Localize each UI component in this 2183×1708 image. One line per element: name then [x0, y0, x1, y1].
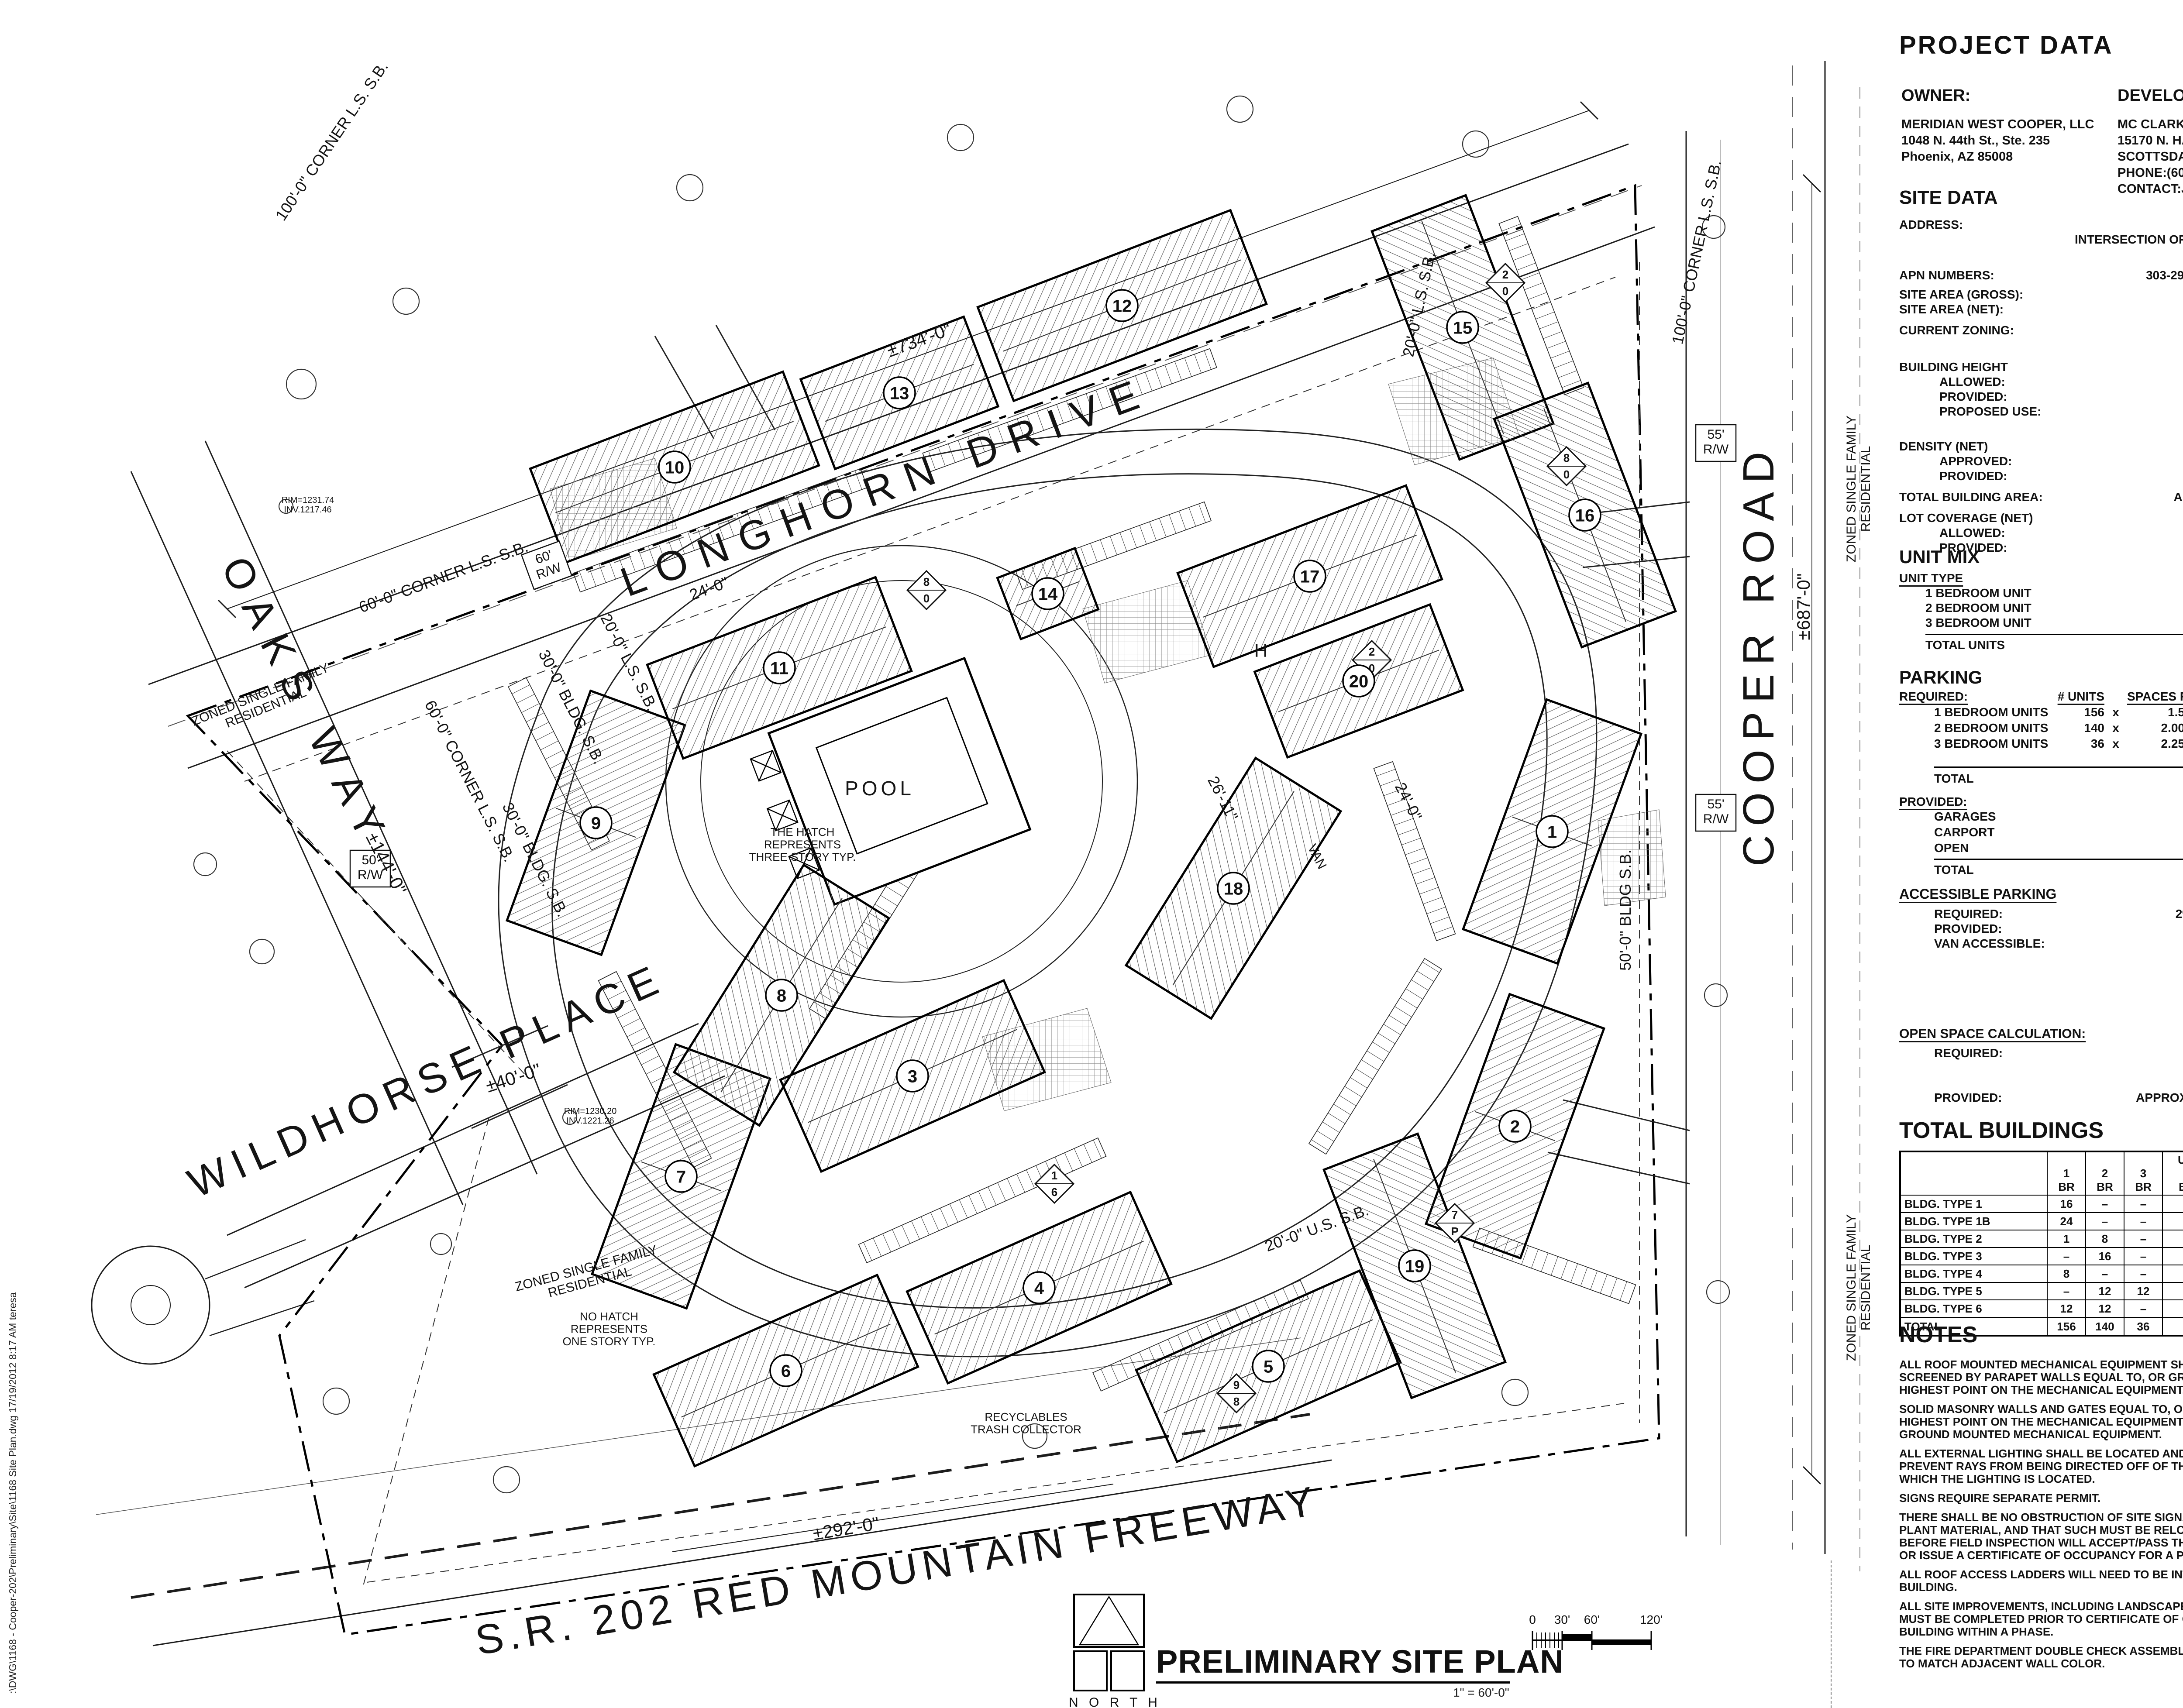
accessible-parking-block: ACCESSIBLE PARKING REQUIRED:2% x 626 = 1…: [1899, 886, 2183, 951]
site-data-title: SITE DATA: [1899, 187, 1998, 209]
building-number-marker: 6: [770, 1355, 802, 1386]
table-cell: 9: [2162, 1230, 2183, 1247]
parking-title: PARKING: [1899, 667, 2183, 688]
parking-cell: GARAGES: [1934, 809, 2183, 825]
svg-text:20: 20: [1349, 672, 1369, 691]
drawing-sheet: 208020167P9880 60'R/W55'R/W55'R/W50'R/W …: [0, 0, 2183, 1708]
row-label: ADDRESS:: [1899, 217, 1963, 262]
row-value: TO BE ASSIGNED INTERSECTION OF COOPER RO…: [2075, 217, 2183, 262]
accessible-row: PROVIDED:14 SPACES: [1934, 921, 2183, 936]
svg-text:55': 55': [1707, 797, 1724, 811]
parking-cell: x: [2104, 736, 2127, 752]
svg-text:10: 10: [665, 458, 685, 477]
svg-text:6: 6: [781, 1361, 791, 1381]
building-number-marker: 15: [1447, 312, 1478, 343]
building-number-marker: 14: [1032, 578, 1064, 609]
table-row: BLDG. TYPE 218–9436: [1900, 1230, 2183, 1247]
row-value: 2% x 626 = 13 SPACES: [2176, 907, 2183, 921]
site-data-row: ADDRESS:TO BE ASSIGNED INTERSECTION OF C…: [1899, 217, 2183, 262]
open-space-row: REQUIRED:150 SF/BEDROOM 568 TOTAL BEDROO…: [1934, 1046, 2183, 1090]
table-cell: BLDG. TYPE 1: [1900, 1195, 2047, 1213]
owner-block: OWNER: MERIDIAN WEST COOPER, LLC 1048 N.…: [1901, 86, 2107, 165]
site-data-row: APN NUMBERS:303-29-483A, 303-29-484A, 30…: [1899, 268, 2183, 283]
plan-label: ZONED SINGLE FAMILYRESIDENTIAL: [1844, 416, 1873, 562]
site-data-row: TOTAL BUILDING AREA:Approx. 4.43 ACRES (…: [1899, 490, 2183, 505]
site-data-row: PROVIDED:17.70 D.U./NET ACRE MAX: [1899, 469, 2183, 484]
unit-mix-title: UNIT MIX: [1899, 546, 2183, 567]
parking-cell: x: [2104, 705, 2127, 720]
project-data-title: PROJECT DATA: [1899, 31, 2114, 60]
plan-label: 50'-0" BLDG S.B.: [1616, 849, 1634, 971]
note-paragraph: THERE SHALL BE NO OBSTRUCTION OF SITE SI…: [1899, 1511, 2183, 1562]
parking-cell: 156: [2056, 705, 2104, 720]
svg-text:8: 8: [1563, 451, 1570, 464]
svg-text:2: 2: [1502, 268, 1508, 281]
svg-text:3: 3: [908, 1067, 917, 1086]
building-number-marker: 3: [897, 1060, 928, 1092]
parking-cell: 36: [2056, 736, 2104, 752]
table-row: BLDG. TYPE 5–121224372: [1900, 1282, 2183, 1300]
row-label: APN NUMBERS:: [1899, 268, 1994, 283]
row-value: 303-29-483A, 303-29-484A, 303-29-029S: [2146, 268, 2183, 283]
table-cell: –: [2124, 1195, 2162, 1213]
table-cell: –: [2086, 1195, 2124, 1213]
table-cell: –: [2047, 1282, 2086, 1300]
note-paragraph: THE FIRE DEPARTMENT DOUBLE CHECK ASSEMBL…: [1899, 1645, 2183, 1670]
svg-text:8: 8: [923, 575, 930, 588]
table-row: BLDG. TYPE 1B24––24372: [1900, 1213, 2183, 1230]
svg-text:R/W: R/W: [1703, 442, 1729, 457]
building-number-marker: 19: [1399, 1250, 1430, 1282]
scale-text: 1" = 60'-0": [1453, 1686, 1509, 1700]
site-data-row: CURRENT ZONING:P.A.D. COMMERCIAL: [1899, 323, 2183, 353]
plan-label: S.R. 202 RED MOUNTAIN FREEWAY: [472, 1478, 1322, 1664]
unit-mix-row: 2 BEDROOM UNIT140: [1925, 601, 2183, 615]
svg-text:4: 4: [1034, 1278, 1044, 1298]
site-data-row: SITE AREA (GROSS):XX.XX ACRES (XXX,XXX S…: [1899, 287, 2183, 302]
table-cell: 8: [2086, 1230, 2124, 1247]
parking-cell: 1.5: [2127, 705, 2183, 720]
table-cell: –: [2124, 1247, 2162, 1265]
svg-text:8: 8: [1233, 1395, 1240, 1408]
parking-cell: 2 BEDROOM UNITS: [1934, 720, 2056, 736]
parking-provided-row: GARAGES=72 P.S.: [1899, 809, 2183, 825]
row-label: CURRENT ZONING:: [1899, 323, 2014, 353]
svg-text:0: 0: [1502, 285, 1508, 298]
svg-text:16: 16: [1575, 506, 1595, 525]
row-label: DENSITY (NET): [1899, 439, 1988, 454]
plan-label: 100'-0" CORNER L.S. S.B.: [1668, 158, 1725, 346]
building-number-marker: 13: [884, 377, 915, 409]
owner-heading: OWNER:: [1901, 86, 2107, 105]
building-number-marker: 16: [1569, 499, 1601, 531]
table-cell: –: [2086, 1265, 2124, 1282]
table-header: UNITS PER BLDG: [2162, 1151, 2183, 1195]
plan-label: 60'-0" CORNER L.S. S.B.: [356, 537, 530, 616]
parking-strip: [1374, 762, 1456, 941]
table-row: BLDG. TYPE 61212–24248: [1900, 1300, 2183, 1318]
table-cell: 8: [2162, 1265, 2183, 1282]
unit-mix-col1: UNIT TYPE: [1899, 571, 1963, 586]
row-label: ALLOWED:: [1899, 526, 2005, 540]
open-space-row: PROVIDED:APPROX. 145,756 SF OPEN SPACE: [1934, 1090, 2183, 1105]
site-data-row: APPROVED:18 D.U./NET ACRE MAX: [1899, 454, 2183, 469]
table-cell: –: [2124, 1213, 2162, 1230]
row-label: SITE AREA (NET):: [1899, 302, 2004, 317]
svg-text:P: P: [1451, 1225, 1458, 1238]
table-cell: 12: [2086, 1282, 2124, 1300]
row-label: PROVIDED:: [1899, 469, 2007, 484]
plan-label: 60'-0" CORNER L.S. S.B.: [421, 697, 519, 865]
building-number-marker: 11: [764, 652, 795, 684]
svg-text:7: 7: [676, 1167, 686, 1186]
svg-text:8: 8: [777, 986, 786, 1005]
parking-required-row: 1 BEDROOM UNITS156x1.5=234 P.S.: [1899, 705, 2183, 720]
parking-cell: 3 BEDROOM UNITS: [1934, 736, 2056, 752]
total-buildings-title: TOTAL BUILDINGS: [1899, 1117, 2183, 1144]
row-label: ALLOWED:: [1899, 375, 2005, 389]
parking-provided-label: PROVIDED:: [1899, 795, 2183, 809]
table-header: 1 BR: [2047, 1151, 2086, 1195]
note-paragraph: ALL ROOF MOUNTED MECHANICAL EQUIPMENT SH…: [1899, 1358, 2183, 1396]
table-cell: BLDG. TYPE 2: [1900, 1230, 2047, 1247]
table-cell: BLDG. TYPE 3: [1900, 1247, 2047, 1265]
table-header: [1900, 1151, 2047, 1195]
notes-list: ALL ROOF MOUNTED MECHANICAL EQUIPMENT SH…: [1899, 1358, 2183, 1670]
parking-block: PARKING REQUIRED: # UNITS SPACES REQ'D 1…: [1899, 667, 2183, 877]
table-cell: BLDG. TYPE 4: [1900, 1265, 2047, 1282]
svg-text:55': 55': [1707, 427, 1724, 442]
svg-text:11: 11: [770, 659, 788, 678]
row-label: 2 BEDROOM UNIT: [1925, 601, 2031, 615]
note-paragraph: SIGNS REQUIRE SEPARATE PERMIT.: [1899, 1492, 2183, 1505]
unit-mix-total-label: TOTAL UNITS: [1925, 638, 2005, 653]
svg-text:7: 7: [1452, 1208, 1458, 1221]
plan-label: WILDHORSE PLACE: [181, 955, 672, 1207]
accessible-row: VAN ACCESSIBLE:3 SPACES: [1934, 936, 2183, 951]
site-data-row: SITE AREA (NET):18.75 ACRES (816,894 S.F…: [1899, 302, 2183, 317]
parking-cell: 140: [2056, 720, 2104, 736]
scale-mark-label: 0: [1529, 1613, 1536, 1626]
parking-strip: [1309, 959, 1442, 1154]
total-buildings-table: 1 BR2 BR3 BRUNITS PER BLDG# OF BLDG'STOT…: [1899, 1151, 2183, 1337]
site-data-row: PROVIDED:42" MAX HT.: [1899, 389, 2183, 404]
svg-text:14: 14: [1038, 584, 1058, 604]
scale-mark-label: 60': [1584, 1613, 1600, 1626]
developer-block: DEVELOPER: MC CLARK WAYLAND DEVELOPMENT,…: [2118, 86, 2183, 197]
plan-label: NO HATCHREPRESENTSONE STORY TYP.: [563, 1310, 656, 1348]
row-label: SITE AREA (GROSS):: [1899, 287, 2023, 302]
plan-label: POOL: [845, 777, 915, 800]
table-cell: 16: [2162, 1195, 2183, 1213]
svg-text:2: 2: [1369, 645, 1375, 658]
building-number-marker: 2: [1499, 1110, 1531, 1142]
parking-col-spaces: SPACES REQ'D: [2127, 689, 2183, 705]
north-arrow-icon: [1072, 1592, 1146, 1693]
owner-lines: MERIDIAN WEST COOPER, LLC 1048 N. 44th S…: [1901, 117, 2107, 165]
parking-col-units: # UNITS: [2056, 689, 2104, 705]
open-space-block: OPEN SPACE CALCULATION: REQUIRED:150 SF/…: [1899, 1027, 2183, 1105]
plan-label: ZONED SINGLE FAMILYRESIDENTIAL: [1844, 1214, 1873, 1361]
plan-label: 100'-0" CORNER L.S. S.B.: [272, 58, 391, 223]
notes-block: NOTES ALL ROOF MOUNTED MECHANICAL EQUIPM…: [1899, 1322, 2183, 1677]
svg-text:1: 1: [1547, 822, 1557, 842]
unit-mix-row: 3 BEDROOM UNIT36: [1925, 615, 2183, 630]
title-underline: [1156, 1681, 1510, 1684]
plan-label: COOPER ROAD: [1734, 443, 1783, 866]
site-data-row: ALLOWED:45%: [1899, 526, 2183, 540]
table-cell: 12: [2086, 1300, 2124, 1318]
scale-mark-label: 30': [1554, 1613, 1570, 1626]
table-cell: 12: [2047, 1300, 2086, 1318]
svg-text:13: 13: [890, 384, 909, 403]
row-label: 3 BEDROOM UNIT: [1925, 615, 2031, 630]
parking-cell: OPEN: [1934, 840, 2183, 856]
note-paragraph: ALL SITE IMPROVEMENTS, INCLUDING LANDSCA…: [1899, 1600, 2183, 1638]
plan-label: RECYCLABLESTRASH COLLECTOR: [971, 1410, 1081, 1436]
table-cell: 24: [2047, 1213, 2086, 1230]
parking-required-total-label: TOTAL: [1934, 771, 1974, 786]
plan-label: ±292'-0": [811, 1513, 881, 1544]
svg-text:9: 9: [591, 814, 601, 833]
building-number-marker: 5: [1253, 1351, 1284, 1382]
row-value: APPROX. 145,756 SF OPEN SPACE: [2136, 1090, 2183, 1105]
table-cell: 12: [2124, 1282, 2162, 1300]
notes-title: NOTES: [1899, 1322, 2183, 1348]
table-header: 3 BR: [2124, 1151, 2162, 1195]
row-label: PROVIDED:: [1934, 921, 2002, 936]
svg-text:1: 1: [1051, 1169, 1057, 1182]
note-paragraph: ALL EXTERNAL LIGHTING SHALL BE LOCATED A…: [1899, 1447, 2183, 1485]
parking-provided-row: CARPORT=336 P.S.: [1899, 825, 2183, 840]
svg-text:18: 18: [1224, 879, 1243, 898]
row-label: APPROVED:: [1899, 454, 2012, 469]
plan-label: RIM=1231.74INV.1217.46: [282, 495, 334, 515]
north-label: N O R T H: [1069, 1695, 1161, 1708]
row-label: PROPOSED USE:: [1899, 404, 2041, 434]
parking-cell: 2.25: [2127, 736, 2183, 752]
svg-text:2: 2: [1510, 1117, 1520, 1136]
row-label: LOT COVERAGE (NET): [1899, 511, 2033, 526]
right-of-way-label: 55'R/W: [1696, 794, 1736, 831]
file-path-text: :\DWG\1168 - Cooper-202\Preliminary\Site…: [7, 1292, 19, 1694]
parking-provided-total-label: TOTAL: [1934, 863, 1974, 877]
building-number-marker: 17: [1294, 560, 1326, 592]
table-cell: 24: [2162, 1213, 2183, 1230]
parking-cell: x: [2104, 720, 2127, 736]
row-label: BUILDING HEIGHT: [1899, 360, 2008, 375]
building-number-marker: 4: [1023, 1272, 1055, 1303]
svg-text:17: 17: [1300, 567, 1320, 586]
building-number-marker: 7: [665, 1161, 697, 1192]
svg-text:6: 6: [1051, 1186, 1057, 1199]
developer-heading: DEVELOPER:: [2118, 86, 2183, 105]
building-number-marker: 8: [766, 979, 797, 1011]
building-number-marker: 18: [1218, 873, 1249, 904]
trim-dash-line: [1831, 1560, 1832, 1708]
table-cell: BLDG. TYPE 5: [1900, 1282, 2047, 1300]
svg-text:R/W: R/W: [1703, 812, 1729, 826]
site-data-row: ALLOWED:1 , 2 & 3 STORIES 45' MAX HT.': [1899, 375, 2183, 389]
table-cell: BLDG. TYPE 6: [1900, 1300, 2047, 1318]
site-data-rows: ADDRESS:TO BE ASSIGNED INTERSECTION OF C…: [1899, 217, 2183, 555]
site-data-row: LOT COVERAGE (NET): [1899, 511, 2183, 526]
site-plan-drawing: 208020167P9880 60'R/W55'R/W55'R/W50'R/W …: [0, 0, 1890, 1708]
table-row: BLDG. TYPE 116––16316: [1900, 1195, 2183, 1213]
unit-mix-block: UNIT MIX UNIT TYPE # OF UNITS 1 BEDROOM …: [1899, 546, 2183, 653]
table-header: 2 BR: [2086, 1151, 2124, 1195]
developer-lines: MC CLARK WAYLAND DEVELOPMENT, LLC 15170 …: [2118, 117, 2183, 197]
svg-text:0: 0: [923, 592, 930, 605]
svg-text:9: 9: [1233, 1378, 1240, 1392]
row-label: PROVIDED:: [1899, 389, 2007, 404]
parking-cell: CARPORT: [1934, 825, 2183, 840]
scale-bar: 030'60'120': [1519, 1589, 1707, 1667]
row-label: REQUIRED:: [1934, 907, 2003, 921]
right-of-way-label: 55'R/W: [1696, 425, 1736, 461]
note-paragraph: ALL ROOF ACCESS LADDERS WILL NEED TO BE …: [1899, 1568, 2183, 1594]
accessible-row: REQUIRED:2% x 626 = 13 SPACES: [1934, 907, 2183, 921]
total-buildings-block: TOTAL BUILDINGS 1 BR2 BR3 BRUNITS PER BL…: [1899, 1117, 2183, 1337]
row-label: TOTAL BUILDING AREA:: [1899, 490, 2043, 505]
site-data-row: DENSITY (NET): [1899, 439, 2183, 454]
building-number-marker: 20: [1343, 665, 1374, 697]
building-number-marker: 12: [1106, 290, 1138, 321]
note-paragraph: SOLID MASONRY WALLS AND GATES EQUAL TO, …: [1899, 1403, 2183, 1441]
row-label: 1 BEDROOM UNIT: [1925, 586, 2031, 601]
row-label: PROVIDED:: [1934, 1090, 2002, 1105]
table-cell: –: [2086, 1213, 2124, 1230]
parking-provided-row: OPEN=218 P.S.: [1899, 840, 2183, 856]
svg-text:19: 19: [1405, 1257, 1425, 1276]
plan-label: RIM=1230.20INV.1221.26: [564, 1107, 617, 1126]
table-cell: 16: [2162, 1247, 2183, 1265]
row-label: REQUIRED:: [1934, 1046, 2003, 1090]
site-data-row: BUILDING HEIGHT45'-0": [1899, 360, 2183, 375]
plan-label: H: [1254, 640, 1267, 661]
table-cell: –: [2124, 1230, 2162, 1247]
parking-cell: 1 BEDROOM UNITS: [1934, 705, 2056, 720]
table-row: BLDG. TYPE 3–16–16348: [1900, 1247, 2183, 1265]
table-cell: 16: [2047, 1195, 2086, 1213]
open-space-title: OPEN SPACE CALCULATION:: [1899, 1027, 2183, 1041]
row-label: VAN ACCESSIBLE:: [1934, 936, 2045, 951]
building-number-marker: 9: [580, 807, 612, 839]
site-data-row: PROPOSED USE:PAD MF-2 = MULTIPLE-FAMILY …: [1899, 404, 2183, 434]
table-cell: –: [2124, 1300, 2162, 1318]
svg-text:12: 12: [1112, 296, 1132, 316]
svg-text:0: 0: [1563, 468, 1570, 481]
unit-mix-row: 1 BEDROOM UNIT156: [1925, 586, 2183, 601]
preliminary-site-plan-title: PRELIMINARY SITE PLAN: [1156, 1643, 1564, 1680]
parking-required-label: REQUIRED:: [1899, 689, 2056, 705]
plan-label: ±687'-0": [1793, 573, 1814, 640]
table-cell: 24: [2162, 1282, 2183, 1300]
scale-mark-label: 120': [1640, 1613, 1663, 1626]
parking-count-diamond: 80: [907, 571, 946, 609]
building-number-marker: 1: [1536, 816, 1568, 847]
table-cell: 8: [2047, 1265, 2086, 1282]
table-cell: 24: [2162, 1300, 2183, 1318]
parking-cell: 2.00: [2127, 720, 2183, 736]
table-cell: BLDG. TYPE 1B: [1900, 1213, 2047, 1230]
row-value: Approx. 4.43 ACRES (193,353 S.F.): [2174, 490, 2183, 505]
table-cell: –: [2047, 1247, 2086, 1265]
building-number-marker: 10: [659, 451, 690, 483]
accessible-title: ACCESSIBLE PARKING: [1899, 886, 2183, 902]
parking-required-row: 3 BEDROOM UNITS36x2.25=81 P.S.: [1899, 736, 2183, 752]
table-cell: 16: [2086, 1247, 2124, 1265]
table-row: BLDG. TYPE 48––818: [1900, 1265, 2183, 1282]
svg-text:5: 5: [1264, 1357, 1273, 1376]
svg-text:15: 15: [1453, 318, 1473, 337]
table-cell: 1: [2047, 1230, 2086, 1247]
parking-required-row: 2 BEDROOM UNITS140x2.00=280 P.S.: [1899, 720, 2183, 736]
table-cell: –: [2124, 1265, 2162, 1282]
